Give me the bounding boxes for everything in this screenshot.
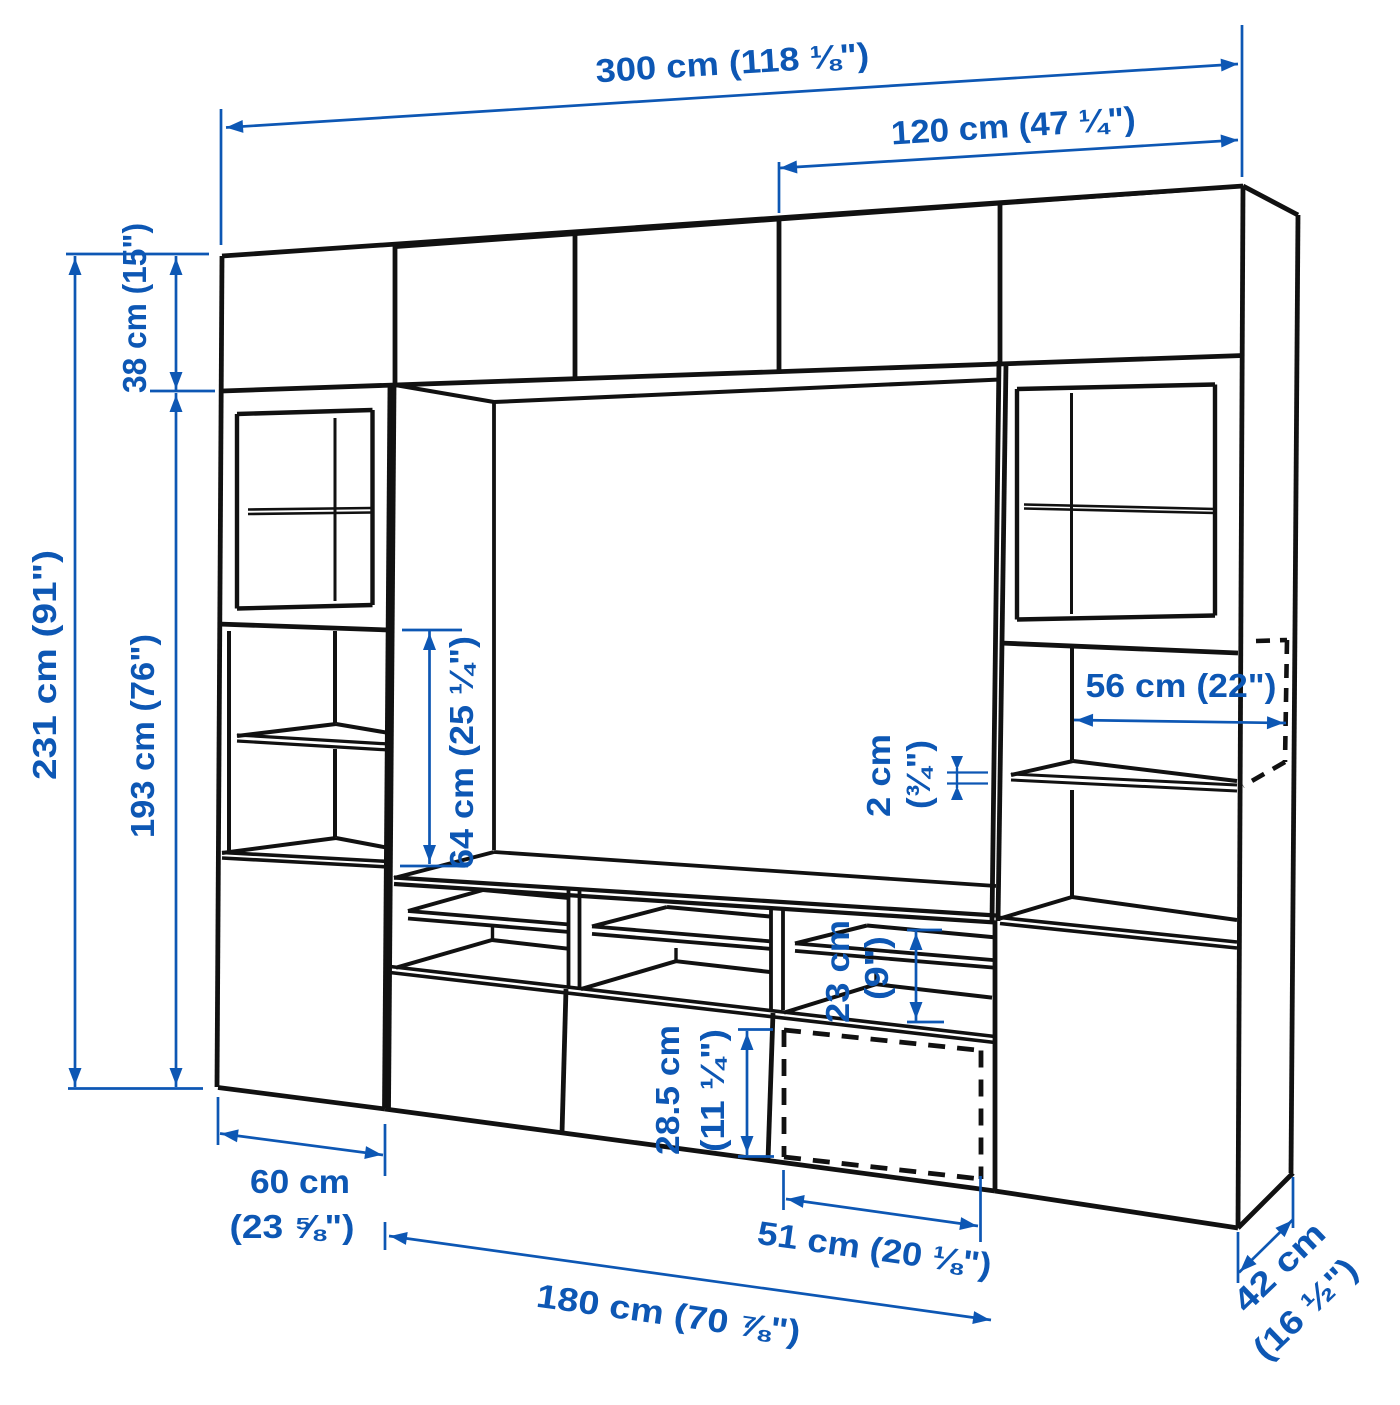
- svg-text:(¾"): (¾"): [900, 740, 937, 809]
- svg-text:(11 ¼"): (11 ¼"): [694, 1029, 731, 1152]
- svg-text:23 cm: 23 cm: [819, 920, 856, 1023]
- svg-text:193 cm (76"): 193 cm (76"): [124, 634, 161, 838]
- svg-text:38 cm (15"): 38 cm (15"): [116, 223, 153, 393]
- svg-text:60 cm: 60 cm: [250, 1163, 350, 1200]
- svg-text:(23 ⅝"): (23 ⅝"): [230, 1208, 355, 1245]
- svg-text:(9"): (9"): [858, 936, 895, 1000]
- svg-text:64 cm (25 ¼"): 64 cm (25 ¼"): [443, 636, 480, 869]
- svg-text:2 cm: 2 cm: [860, 734, 897, 817]
- svg-text:28.5 cm: 28.5 cm: [649, 1025, 686, 1155]
- svg-text:56 cm (22"): 56 cm (22"): [1086, 667, 1277, 704]
- svg-text:231 cm (91"): 231 cm (91"): [26, 550, 63, 780]
